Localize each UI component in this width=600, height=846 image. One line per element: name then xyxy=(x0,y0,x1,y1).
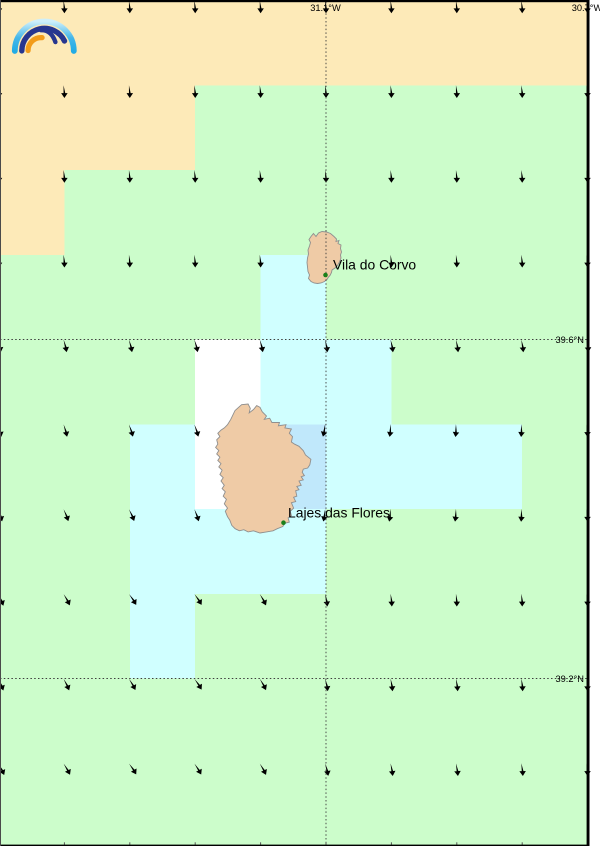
svg-text:31.1°W: 31.1°W xyxy=(310,3,341,13)
svg-text:Vila do Corvo: Vila do Corvo xyxy=(333,257,416,273)
svg-text:39.6°N: 39.6°N xyxy=(555,335,584,345)
svg-text:30.7°W: 30.7°W xyxy=(572,3,600,13)
svg-text:39.2°N: 39.2°N xyxy=(555,674,584,684)
svg-text:Lajes das Flores: Lajes das Flores xyxy=(288,505,390,521)
